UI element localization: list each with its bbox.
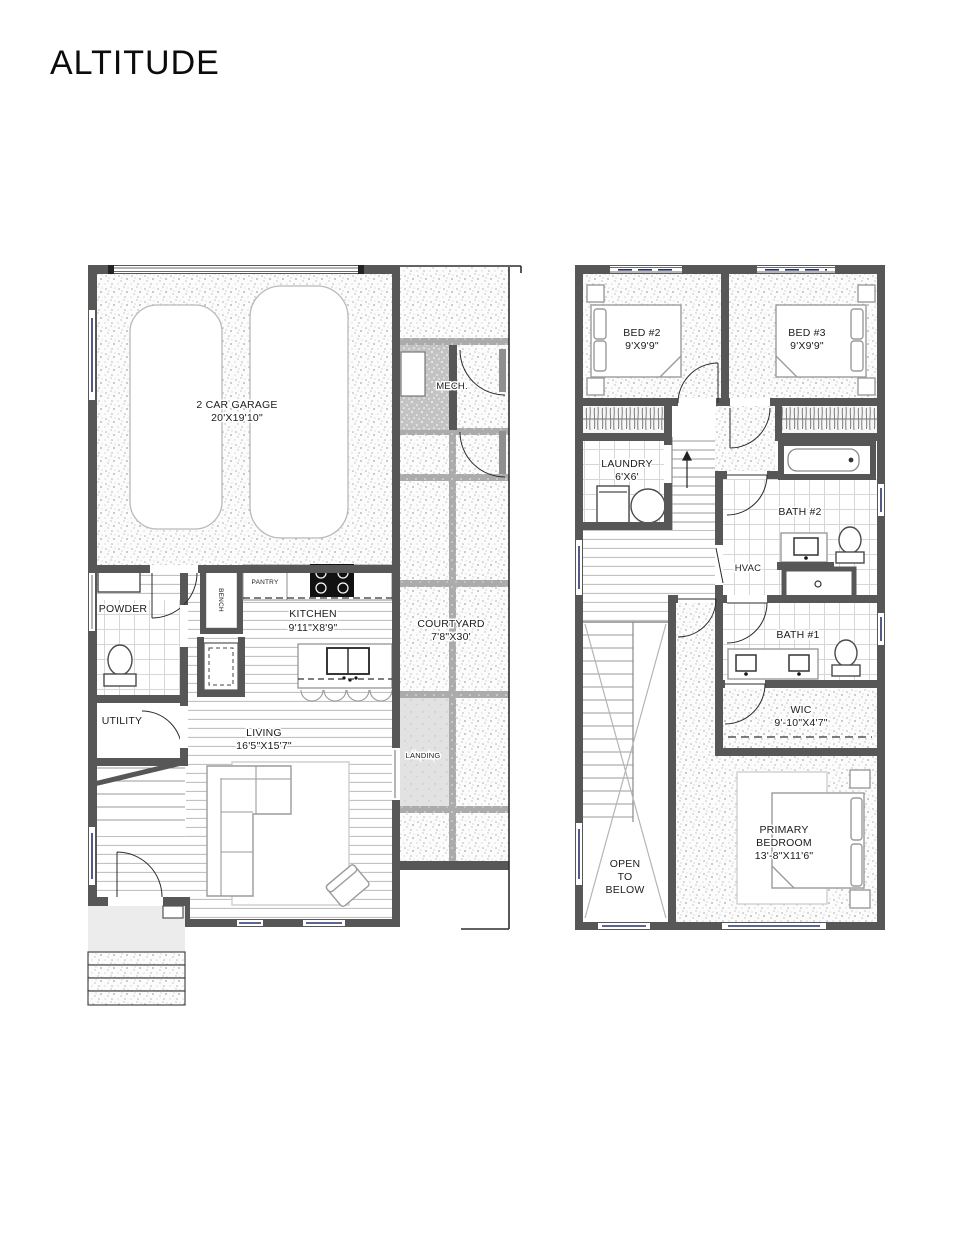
bed3-label: BED #3 (788, 327, 825, 339)
garage-door (108, 265, 364, 274)
living-label: LIVING (246, 727, 282, 739)
pantry-label: PANTRY (252, 579, 279, 586)
bed2-label: BED #2 (623, 327, 660, 339)
hvac-label: HVAC (735, 563, 762, 574)
coat-closet (197, 637, 245, 697)
open-below-label-3: BELOW (606, 884, 645, 896)
bed2-dims: 9'X9'9" (625, 340, 659, 352)
wic-label: WIC (790, 704, 811, 716)
bath2-label: BATH #2 (778, 506, 821, 518)
primary-label-1: PRIMARY (759, 824, 808, 836)
garage-label: 2 CAR GARAGE (196, 399, 277, 411)
floor2-stairs (672, 437, 715, 530)
bench-closet: BENCH (200, 568, 243, 634)
living-dims: 16'5"X15'7" (236, 740, 292, 752)
courtyard (396, 266, 521, 929)
laundry-dims: 6'X6' (615, 471, 639, 483)
bath2-tub (781, 443, 873, 477)
mech-label: MECH. (436, 381, 468, 392)
courtyard-dims: 7'8"X30' (431, 631, 471, 643)
bath1-label: BATH #1 (776, 629, 819, 641)
laundry-label: LAUNDRY (601, 458, 652, 470)
utility-label: UTILITY (102, 715, 143, 727)
hall-floor-lower (583, 596, 668, 622)
garage-dims: 20'X19'10" (211, 412, 263, 424)
stair-up-arrow (683, 452, 691, 488)
bed3-dims: 9'X9'9" (790, 340, 824, 352)
floorplan-drawing: BENCH (0, 0, 974, 1252)
open-below-label-1: OPEN (610, 858, 641, 870)
bed3-closet (782, 406, 877, 433)
landing-label: LANDING (406, 751, 441, 760)
kitchen-label: KITCHEN (289, 608, 337, 620)
floor1-stairs (94, 762, 186, 836)
bed2-closet (583, 406, 664, 433)
hvac-door (716, 548, 723, 583)
shower (784, 569, 854, 599)
bath2-vanity (781, 533, 827, 562)
courtyard-label: COURTYARD (417, 618, 485, 630)
room-utility (97, 703, 182, 758)
bench-label: BENCH (217, 588, 224, 612)
water-heater (401, 352, 425, 396)
landing-nook-floor (715, 406, 775, 471)
floor2-plan: BED #2 9'X9'9" BED #3 9'X9'9" LAUNDRY 6'… (575, 265, 885, 930)
open-below-label-2: TO (618, 871, 633, 883)
primary-label-2: BEDROOM (756, 837, 812, 849)
bath1-vanity (728, 649, 818, 679)
primary-dims: 13'-8"X11'6" (755, 850, 814, 862)
kitchen-dims: 9'11"X8'9" (289, 622, 338, 634)
floorplan-page: ALTITUDE (0, 0, 974, 1252)
hall-floor (583, 530, 715, 596)
powder-label: POWDER (99, 603, 148, 615)
wic-dims: 9'-10"X4'7" (774, 717, 827, 729)
entry-steps (88, 906, 185, 1005)
floor1-plan: BENCH (88, 265, 521, 1005)
